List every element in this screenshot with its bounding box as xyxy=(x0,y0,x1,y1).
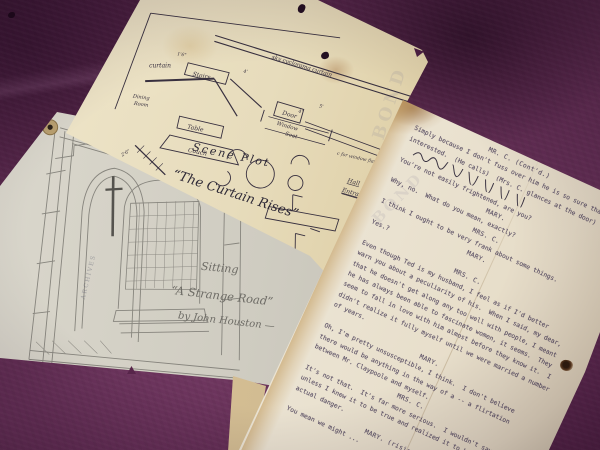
caption-byline: by John Houston — xyxy=(177,310,275,332)
crucifix-drawing xyxy=(103,176,124,237)
surface-speck xyxy=(8,12,15,18)
label-hall: Hall xyxy=(346,177,361,188)
grommet-fastener xyxy=(42,119,58,135)
dim-2ft6: 2'6" xyxy=(119,148,131,159)
museum-display-photo: ARCHIVES Sitting “A Strange Road” by Joh… xyxy=(0,0,600,450)
sketch-captions: Sitting “A Strange Road” by John Houston… xyxy=(169,258,279,332)
caption-sitting: Sitting xyxy=(200,260,239,277)
dim-4ft-b: 4' xyxy=(297,109,303,116)
dim-5ft: 5' xyxy=(319,104,324,111)
label-dining-2: Room xyxy=(132,101,148,109)
dim-1ft6: 1'6" xyxy=(177,51,187,58)
label-curtain: curtain xyxy=(149,62,171,69)
archives-stamp: ARCHIVES xyxy=(80,254,98,301)
label-door: Door xyxy=(280,109,298,120)
plan-title-line1: Scene Plot xyxy=(191,140,271,169)
dim-4ft-a: 4' xyxy=(242,69,248,76)
